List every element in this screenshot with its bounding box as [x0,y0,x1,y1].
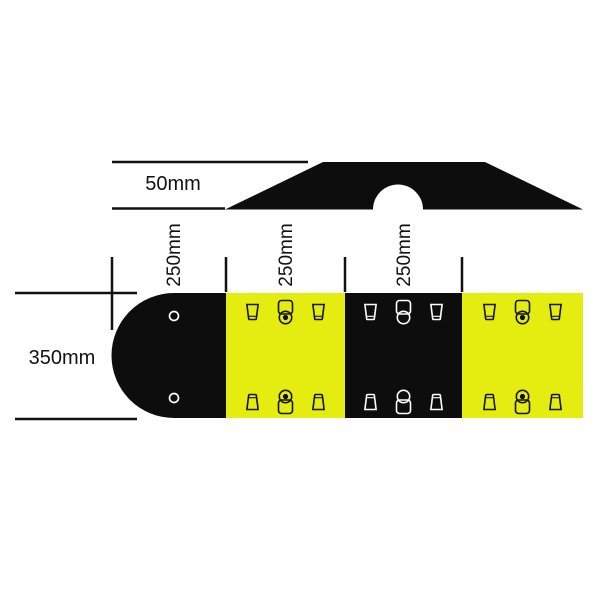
module-width-label-3: 250mm [394,223,415,286]
speed-hump-diagram: 50mm 350mm 250mm 250mm 250mm [0,0,600,600]
width-dimension-label: 350mm [29,347,96,369]
plan-view [112,293,584,418]
module-width-label-1: 250mm [164,223,185,286]
diagram-canvas: 50mm 350mm 250mm 250mm 250mm [0,0,600,600]
side-profile-view: 50mm [112,162,583,210]
plan-end-cap [112,293,226,418]
height-dimension-label: 50mm [145,173,201,195]
module-width-label-2: 250mm [276,223,297,286]
speed-hump-profile-shape [225,162,583,210]
